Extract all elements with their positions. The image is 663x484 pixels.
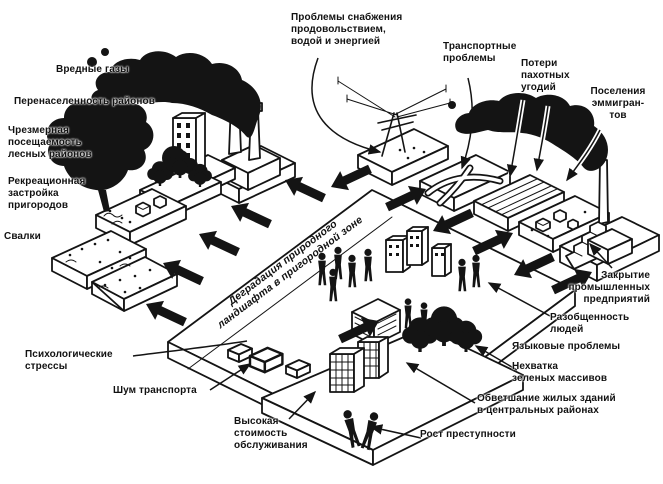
label-dumps: Свалки bbox=[4, 231, 41, 243]
label-industry-closure: Закрытие промышленных предприятий bbox=[548, 270, 650, 306]
label-building-decay: Обветшание жилых зданий в центральных ра… bbox=[477, 393, 616, 417]
label-psychological-stress: Психологические стрессы bbox=[25, 349, 113, 373]
power-pylon-block bbox=[338, 77, 450, 185]
label-overpopulation: Перенаселенность районов bbox=[14, 96, 155, 108]
label-high-maintenance-cost: Высокая стоимость обслуживания bbox=[234, 416, 308, 452]
label-harmful-gases: Вредные газы bbox=[56, 64, 129, 76]
label-people-disconnection: Разобщенность людей bbox=[550, 312, 629, 336]
dump-blocks bbox=[52, 231, 177, 311]
label-crime-growth: Рост преступности bbox=[420, 429, 516, 441]
smokestack-icon bbox=[599, 160, 608, 224]
label-supply-problems: Проблемы снабжения продовольствием, водо… bbox=[291, 12, 402, 48]
label-traffic-noise: Шум транспорта bbox=[113, 385, 197, 397]
label-emigrant-settlements: Поселения эммигран- тов bbox=[578, 86, 658, 122]
label-language-problems: Языковые проблемы bbox=[512, 341, 620, 353]
label-green-space-shortage: Нехватка зеленых массивов bbox=[512, 361, 607, 385]
label-recreational-development: Рекреационная застройка пригородов bbox=[8, 176, 85, 212]
label-arable-land-loss: Потери пахотных угодий bbox=[521, 58, 570, 94]
diagram: Деградация природного ландшафта в пригор… bbox=[0, 0, 663, 484]
label-transport-problems: Транспортные проблемы bbox=[443, 41, 516, 65]
label-forest-overuse: Чрезмерная посещаемость лесных районов bbox=[8, 125, 92, 161]
